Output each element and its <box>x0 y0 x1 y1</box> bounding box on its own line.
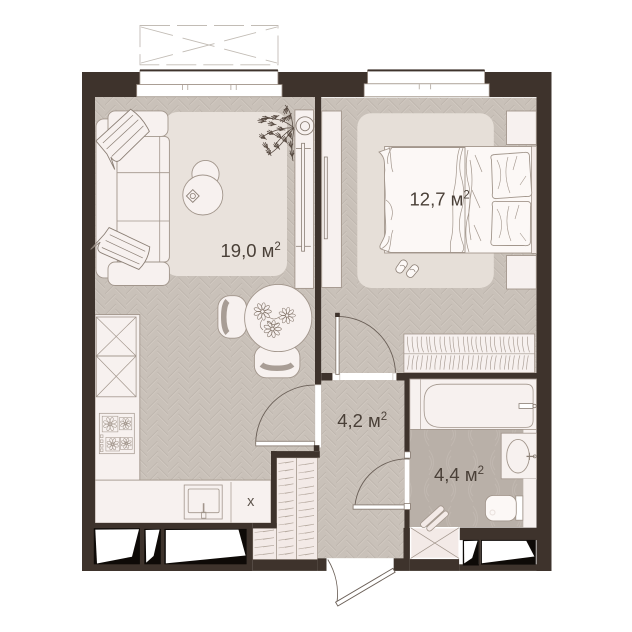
svg-text:x: x <box>247 494 255 510</box>
svg-text:4,4 м2: 4,4 м2 <box>434 464 484 485</box>
svg-text:19,0 м2: 19,0 м2 <box>221 240 281 261</box>
svg-text:12,7 м2: 12,7 м2 <box>410 189 470 210</box>
svg-text:4,2 м2: 4,2 м2 <box>337 410 387 431</box>
